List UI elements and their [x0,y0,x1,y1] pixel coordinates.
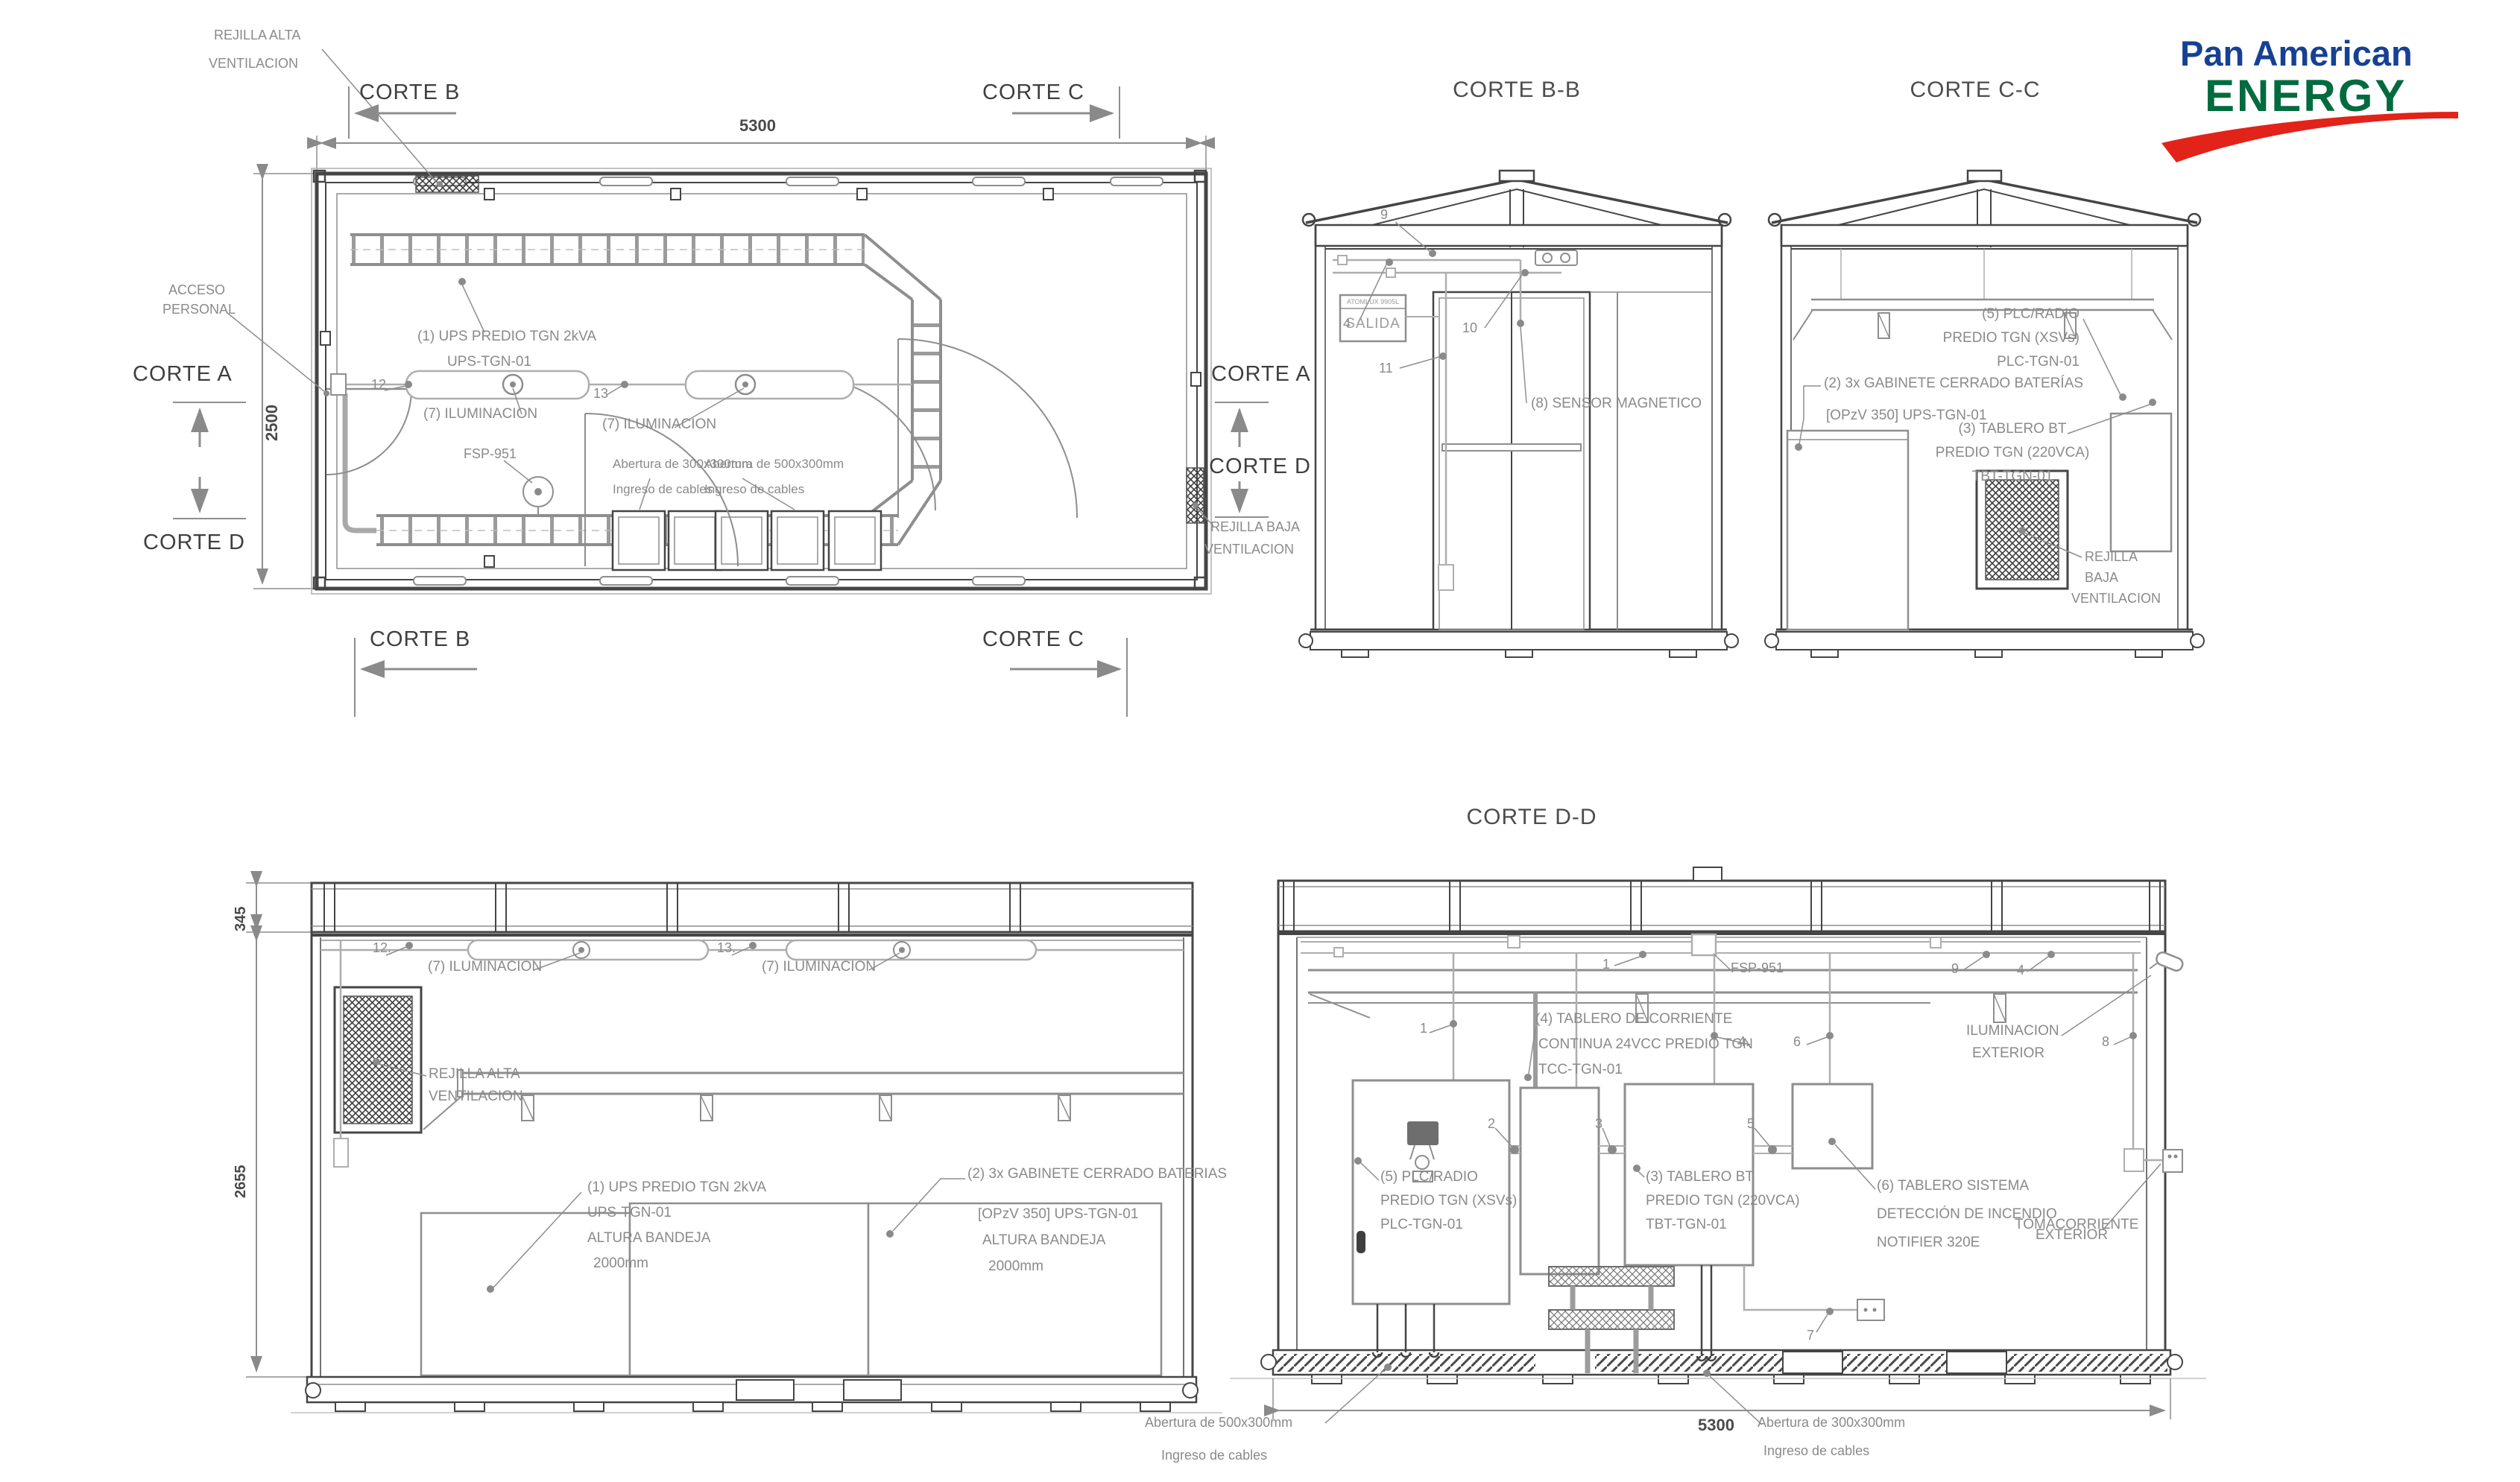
dd-marker-8: 8 [2102,1034,2109,1050]
corte-dd-view [1230,867,2206,1425]
cc-battery-cabinet [1787,431,1908,630]
dd-marker-3: 3 [1595,1116,1602,1132]
dd-tbt-3: TBT-TGN-01 [1646,1217,1727,1233]
plan-corte-c-top: CORTE C [982,80,1084,105]
dd-toma-2: EXTERIOR [2036,1228,2108,1244]
dd-marker-1a: 1 [1420,1021,1427,1036]
corte-bb-door [1433,292,1590,630]
plan-dim-5300: 5300 [739,116,776,136]
bb-marker-11: 11 [1379,361,1393,376]
aa-ups-3: ALTURA BANDEJA [587,1231,710,1247]
aa-ups-2: UPS-TGN-01 [587,1206,672,1221]
bb-sensor-label: (8) SENSOR MAGNETICO [1531,396,1702,412]
aa-ups-4: 2000mm [593,1256,648,1272]
leader-rejilla-alta [322,49,437,183]
cc-plc-2: PREDIO TGN (XSVs) [1848,331,2080,346]
logo-energy: ENERGY [2205,70,2451,121]
aa-battery-cabinets [868,1203,1161,1375]
dd-ab500-2: Ingreso de cables [1161,1448,1267,1463]
aa-gab-1: (2) 3x GABINETE CERRADO BATERIAS [967,1167,1227,1182]
dd-marker-5: 5 [1747,1116,1755,1132]
dd-marker-9: 9 [1951,961,1959,977]
dd-plc-cabinet [1353,1080,1509,1304]
plan-corte-d-right: CORTE D [1209,455,1311,479]
cc-tbt-2: PREDIO TGN (220VCA) [1927,446,2098,461]
plan-rejilla-baja-grille [1187,468,1204,523]
plan-acceso-1: ACCESO [168,283,225,298]
cc-rej-1: REJILLA [2085,550,2138,565]
aa-ups-1: (1) UPS PREDIO TGN 2kVA [587,1180,766,1196]
dd-marker-7: 7 [1807,1328,1814,1343]
plan-ab300-2: Ingreso de cables [613,483,713,497]
dd-plc-2: PREDIO TGN (XSVs) [1380,1194,1517,1209]
plan-ab500-2: Ingreso de cables [704,483,804,497]
aa-dim-2655: 2655 [233,1165,250,1199]
plan-corte-d-left: CORTE D [143,531,245,555]
plan-rejilla-alta-label-1: REJILLA ALTA [214,28,300,43]
corte-bb-title: CORTE B-B [1416,77,1617,103]
plan-marker-12: 12 [371,377,386,393]
plan-ilum-1: (7) ILUMINACION [423,407,537,422]
cc-plc-1: (5) PLC/RADIO [1848,307,2080,323]
plan-access-door-arc [326,389,411,475]
plan-rejilla-alta-grille [416,176,479,192]
bb-salida: SALIDA [1340,316,1406,332]
aa-gab-3: ALTURA BANDEJA [982,1233,1105,1249]
dd-tcc-2: CONTINUA 24VCC PREDIO TGN [1538,1037,1753,1053]
dd-tcc-cabinet [1520,1088,1599,1274]
dd-tbt-1: (3) TABLERO BT [1646,1170,1754,1185]
cc-tbt-3: TBT-TGN-01 [1957,469,2068,485]
dd-notifier-cabinet [1793,1084,1872,1168]
plan-corte-a-left: CORTE A [133,362,233,387]
plan-rejilla-baja-1: REJILLA BAJA [1210,520,1300,535]
dd-tbt-2: PREDIO TGN (220VCA) [1646,1194,1800,1209]
dd-ilum-ext-1: ILUMINACION [1966,1024,2059,1039]
cc-gab-1: (2) 3x GABINETE CERRADO BATERÍAS [1824,376,2083,392]
plan-ab500-1: Abertura de 500x300mm [704,457,844,472]
plan-rejilla-alta-label-2: VENTILACION [209,57,298,72]
dd-not-1: (6) TABLERO SISTEMA [1877,1179,2029,1194]
aa-rejilla-2: VENTILACION [429,1089,523,1105]
dd-ab300-2: Ingreso de cables [1763,1444,1869,1459]
dd-ab500-1: Abertura de 500x300mm [1145,1416,1292,1431]
dd-exterior-light [2155,951,2185,972]
aa-cabinet-2 [630,1203,868,1375]
cc-rej-2: BAJA [2085,571,2118,586]
plan-corte-b-bottom: CORTE B [370,627,470,652]
aa-ilum-1: (7) ILUMINACION [428,960,542,975]
plan-corte-c-bottom: CORTE C [982,627,1084,652]
plan-view [173,49,1269,717]
aa-marker-12: 12. [373,940,391,956]
dd-tcc-1: (4) TABLERO DE CORRIENTE [1535,1012,1732,1027]
aa-rejilla-1: REJILLA ALTA [429,1067,520,1083]
dd-plc-3: PLC-TGN-01 [1380,1217,1463,1233]
plan-ups-2: UPS-TGN-01 [447,355,531,370]
dd-ab300-1: Abertura de 300x300mm [1758,1416,1905,1431]
plan-ilum-2: (7) ILUMINACION [602,417,716,433]
dd-marker-4a: 4 [2017,963,2024,978]
dd-ilum-ext-2: EXTERIOR [1972,1046,2044,1062]
aa-ilum-2: (7) ILUMINACION [762,960,876,975]
drawing-linework [0,0,2520,1482]
plan-dim-2500: 2500 [262,405,282,441]
plan-tray-right [912,300,941,481]
bb-salida-brand: ATOMLUX 9905L [1341,298,1405,305]
bb-marker-9: 9 [1380,207,1388,223]
corte-bb-view [1299,171,1738,657]
aa-gab-4: 2000mm [988,1259,1043,1275]
cc-plc-3: PLC-TGN-01 [1848,355,2080,370]
leader-acceso [227,313,325,392]
plan-rejilla-baja-2: VENTILACION [1204,542,1294,557]
plan-fsp: FSP-951 [464,447,517,462]
corte-dd-title: CORTE D-D [1446,805,1617,830]
dd-marker-2: 2 [1488,1116,1495,1132]
dd-tomacorriente-device [2163,1150,2182,1172]
cc-plc-panel [2111,414,2171,551]
corte-cc-title: CORTE C-C [1875,77,2076,103]
plan-marker-13: 13 [593,386,608,402]
aa-marker-13: 13. [717,940,736,956]
plan-corte-b-top: CORTE B [359,80,460,105]
dd-marker-6: 6 [1793,1034,1801,1050]
dd-not-3: NOTIFIER 320E [1877,1235,1980,1251]
plan-floor-openings [613,511,881,570]
dd-tcc-3: TCC-TGN-01 [1538,1063,1623,1078]
logo-pan-american: Pan American [2180,33,2448,74]
cc-tbt-1: (3) TABLERO BT [1938,422,2087,437]
corte-aa-view [246,883,1222,1413]
dd-fsp: FSP-951 [1731,961,1784,976]
dd-plc-1: (5) PLC/RADIO [1380,1170,1478,1185]
drawing-sheet: Pan American ENERGY REJILLA ALTA VENTILA… [0,0,2520,1482]
plan-corte-a-right: CORTE A [1211,362,1311,387]
aa-gab-2: [OPzV 350] UPS-TGN-01 [978,1207,1138,1223]
dd-dim-5300: 5300 [1698,1416,1734,1435]
cc-rej-3: VENTILACION [2071,592,2161,607]
dd-marker-1b: 1 [1602,957,1610,972]
plan-ups-1: (1) UPS PREDIO TGN 2kVA [417,329,596,345]
plan-acceso-2: PERSONAL [162,303,236,317]
aa-dim-345: 345 [233,907,250,931]
bb-marker-10: 10 [1462,320,1477,336]
